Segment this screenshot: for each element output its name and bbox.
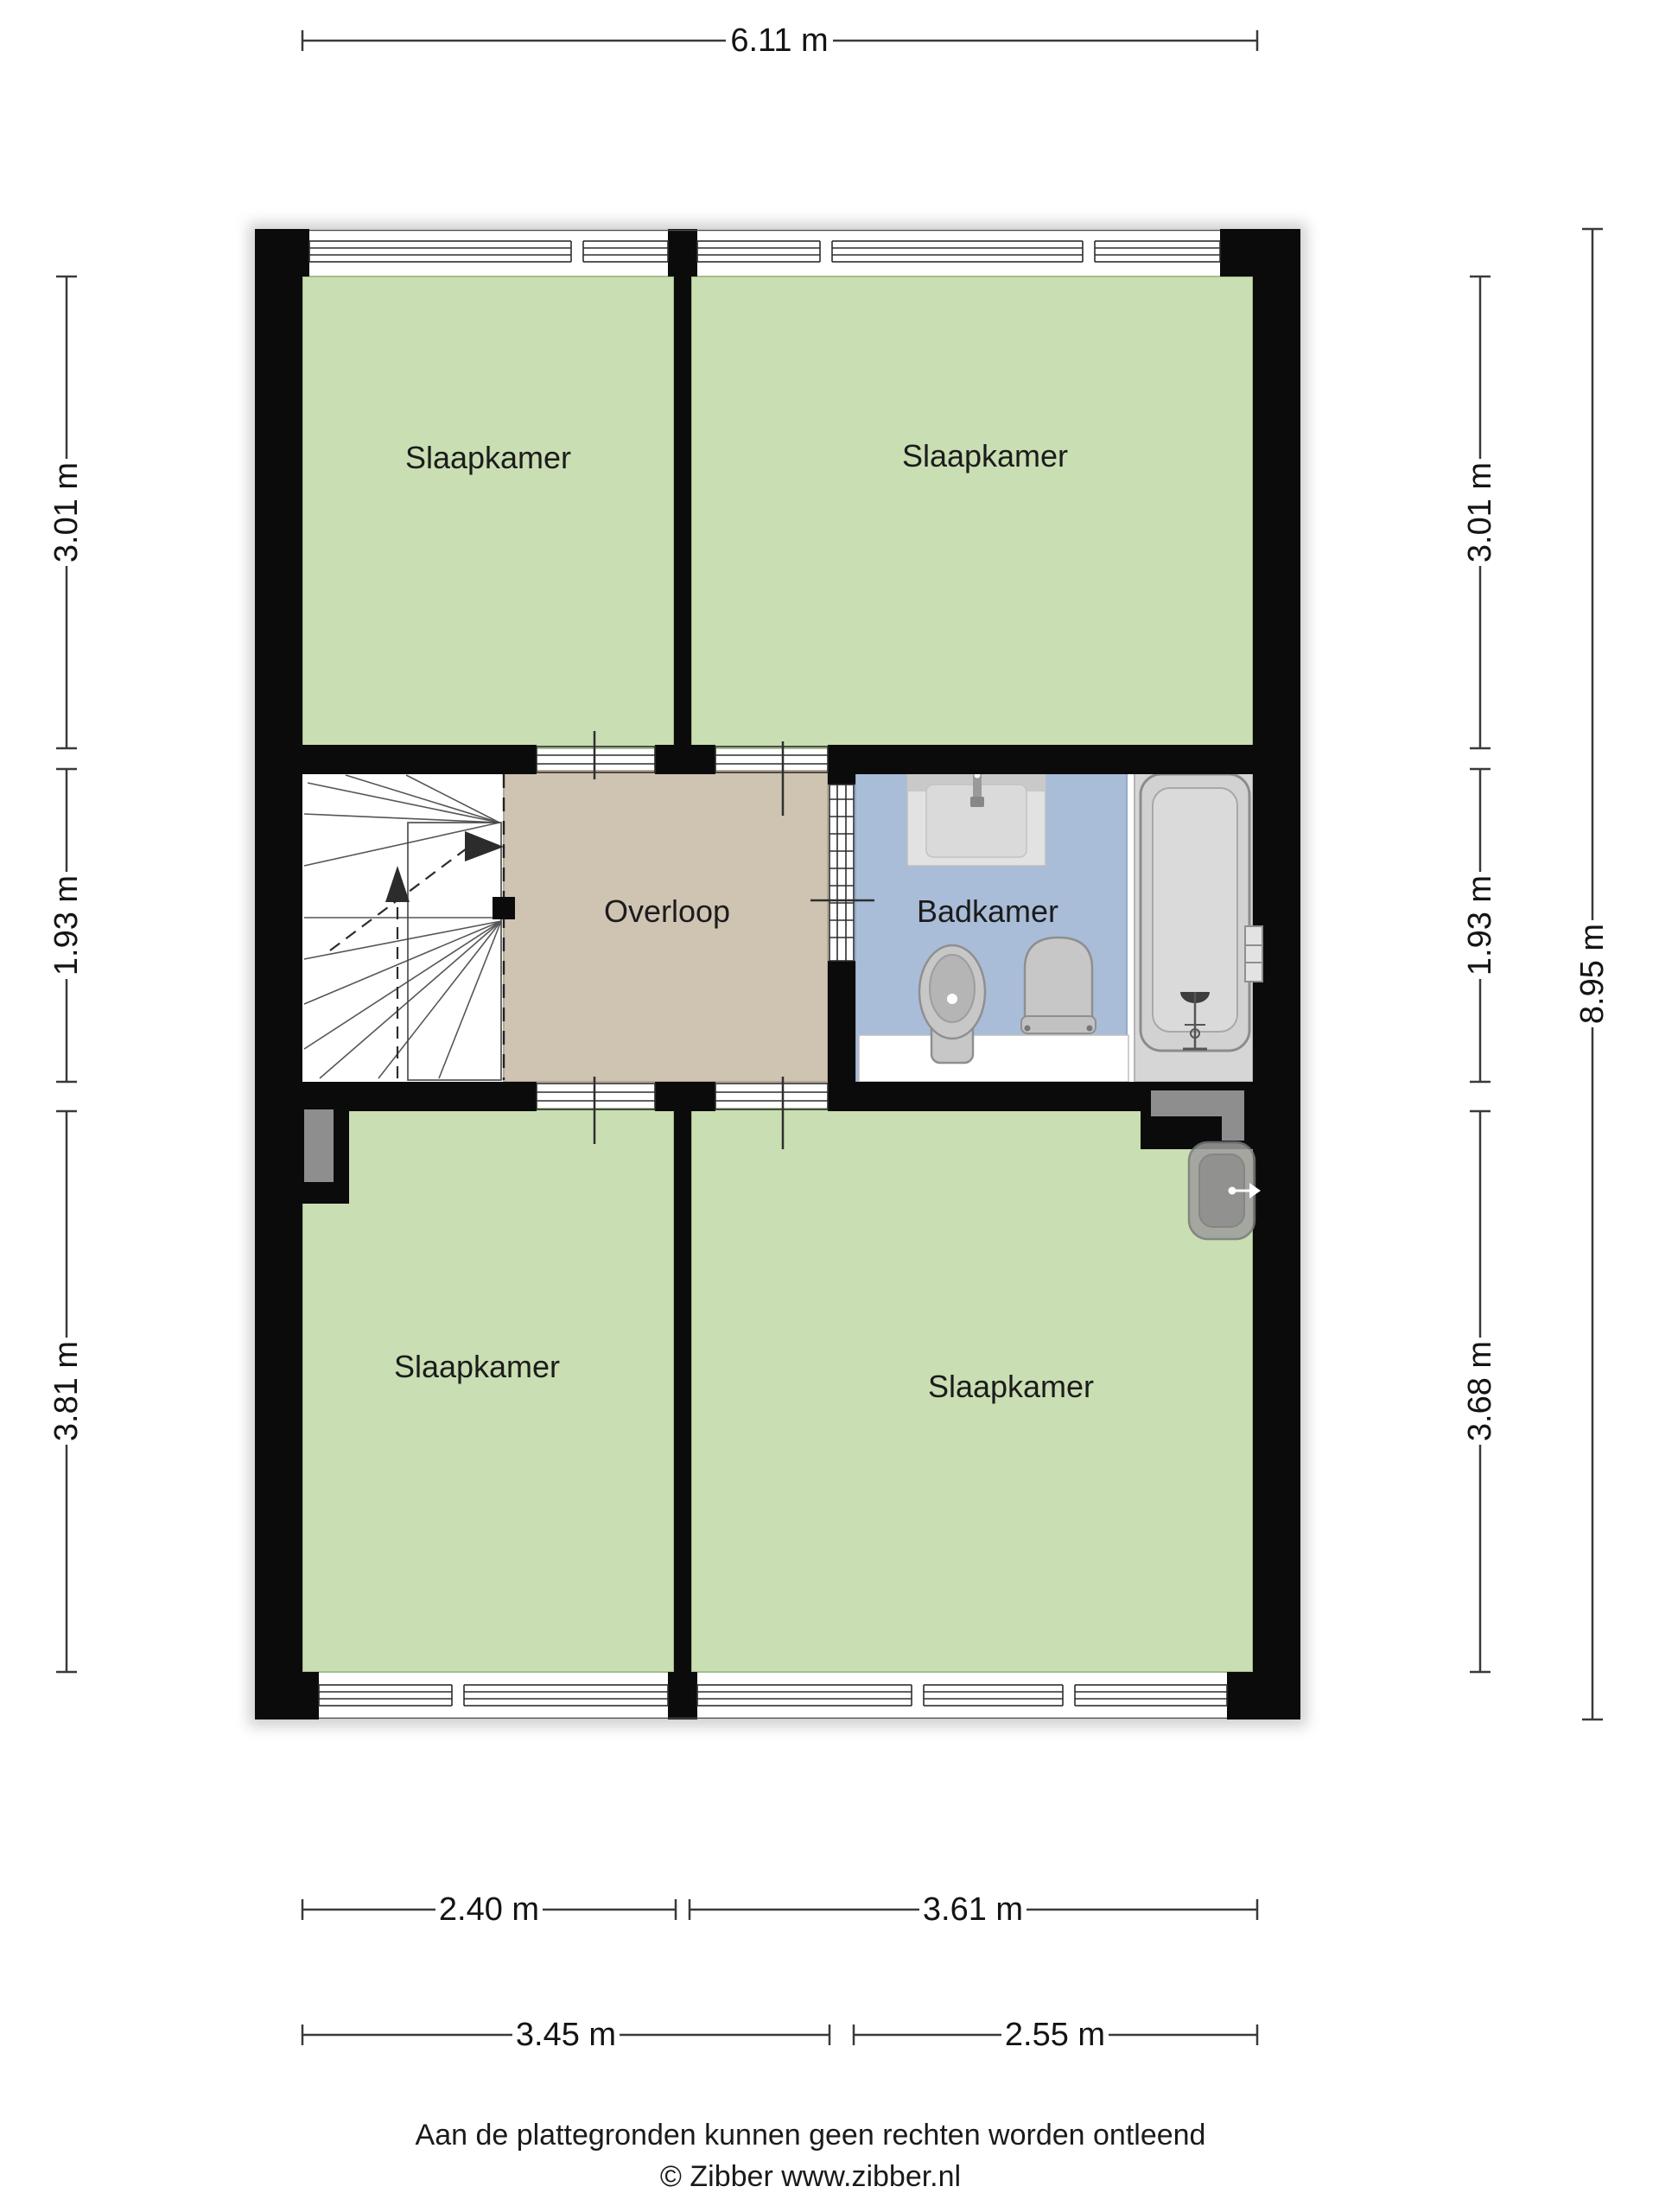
window-mullion bbox=[1083, 239, 1095, 264]
duct-bathroom-corner bbox=[1141, 1082, 1255, 1149]
window-mullion bbox=[912, 1683, 924, 1707]
dimension-label-left-1: 3.01 m bbox=[48, 462, 85, 563]
wall-bathroom-left-upper bbox=[828, 745, 855, 785]
wall-partition2-left bbox=[285, 1082, 537, 1111]
stair-wall-stub bbox=[493, 897, 515, 919]
dimension-left: 3.01 m 1.93 m 3.81 m bbox=[48, 276, 85, 1672]
dimension-label-right-3: 3.68 m bbox=[1462, 1341, 1498, 1441]
wall-partition1-right bbox=[828, 745, 1253, 774]
wall-bottom-corner-left bbox=[255, 1672, 319, 1719]
dimension-label-right-2: 1.93 m bbox=[1462, 875, 1498, 976]
wall-exterior-left bbox=[255, 229, 302, 1719]
washbasin-icon bbox=[1189, 1142, 1261, 1239]
wall-partition1-left bbox=[285, 745, 537, 774]
bathtub-icon bbox=[1141, 774, 1249, 1051]
room-label-bedroom-bottom-left: Slaapkamer bbox=[394, 1349, 560, 1384]
wall-partition2-center bbox=[655, 1082, 715, 1111]
footer-disclaimer: Aan de plattegronden kunnen geen rechten… bbox=[416, 2119, 1206, 2152]
dimension-label-right-1: 3.01 m bbox=[1462, 462, 1498, 563]
bathroom-counter bbox=[859, 1035, 1128, 1082]
dimension-top: 6.11 m bbox=[302, 22, 1257, 59]
dimension-bottom-row1: 2.40 m 3.61 m bbox=[302, 1891, 1257, 1928]
window-mullion bbox=[452, 1683, 464, 1707]
wall-partition1-center bbox=[655, 745, 715, 774]
dimension-label-bottom-zone-left: 3.45 m bbox=[516, 2017, 616, 2053]
dimension-label-bottom-zone-right: 2.55 m bbox=[1005, 2017, 1105, 2053]
wall-bottom-header bbox=[668, 1672, 697, 1719]
dimension-label-right-total: 8.95 m bbox=[1574, 924, 1611, 1024]
room-label-landing: Overloop bbox=[604, 893, 730, 929]
wall-bathroom-left-lower bbox=[828, 961, 855, 1111]
dimension-label-bottom-room-left: 2.40 m bbox=[439, 1891, 539, 1928]
room-label-bedroom-bottom-right: Slaapkamer bbox=[928, 1369, 1094, 1404]
floor-plan-drawing: 6.11 m 3.01 m 1.93 m 3.81 m bbox=[0, 0, 1659, 2212]
wall-top-corner-right bbox=[1220, 229, 1300, 276]
dimension-label-bottom-room-right: 3.61 m bbox=[923, 1891, 1023, 1928]
bedroom-top-right-floor bbox=[691, 276, 1253, 748]
footer-copyright: © Zibber www.zibber.nl bbox=[660, 2160, 961, 2193]
window-mullion bbox=[1063, 1683, 1075, 1707]
window-mullion bbox=[820, 239, 832, 264]
dimension-label-top: 6.11 m bbox=[730, 22, 828, 59]
wall-bottom-corner-right bbox=[1227, 1672, 1300, 1719]
dimension-bottom-row2: 3.45 m 2.55 m bbox=[302, 2017, 1257, 2053]
room-label-bedroom-top-right: Slaapkamer bbox=[902, 438, 1068, 474]
room-floors bbox=[302, 276, 1253, 1672]
room-label-bathroom: Badkamer bbox=[917, 893, 1058, 929]
shower-icon bbox=[907, 769, 1046, 866]
dimension-label-left-2: 1.93 m bbox=[48, 875, 85, 976]
toilet-icon bbox=[1021, 938, 1096, 1033]
floor-plan-page: 6.11 m 3.01 m 1.93 m 3.81 m bbox=[0, 0, 1659, 2212]
window-mullion bbox=[571, 239, 583, 264]
duct-bottom-left-bedroom bbox=[302, 1109, 349, 1204]
footer: Aan de plattegronden kunnen geen rechten… bbox=[416, 2119, 1206, 2193]
room-label-bedroom-top-left: Slaapkamer bbox=[405, 440, 571, 475]
dimension-right-total: 8.95 m bbox=[1574, 229, 1611, 1719]
bedroom-bottom-left-floor bbox=[302, 1109, 674, 1672]
dimension-right-inner: 3.01 m 1.93 m 3.68 m bbox=[1462, 276, 1498, 1672]
dimension-label-left-3: 3.81 m bbox=[48, 1341, 85, 1441]
bedroom-top-left-floor bbox=[302, 276, 674, 748]
wall-divider-bottom-bedrooms bbox=[674, 1109, 691, 1672]
wall-top-corner-left bbox=[255, 229, 309, 276]
wall-partition2-right bbox=[828, 1082, 1141, 1111]
towel-radiator-icon bbox=[1245, 926, 1262, 982]
wall-top-header bbox=[668, 229, 697, 276]
wall-divider-top-bedrooms bbox=[674, 276, 691, 760]
